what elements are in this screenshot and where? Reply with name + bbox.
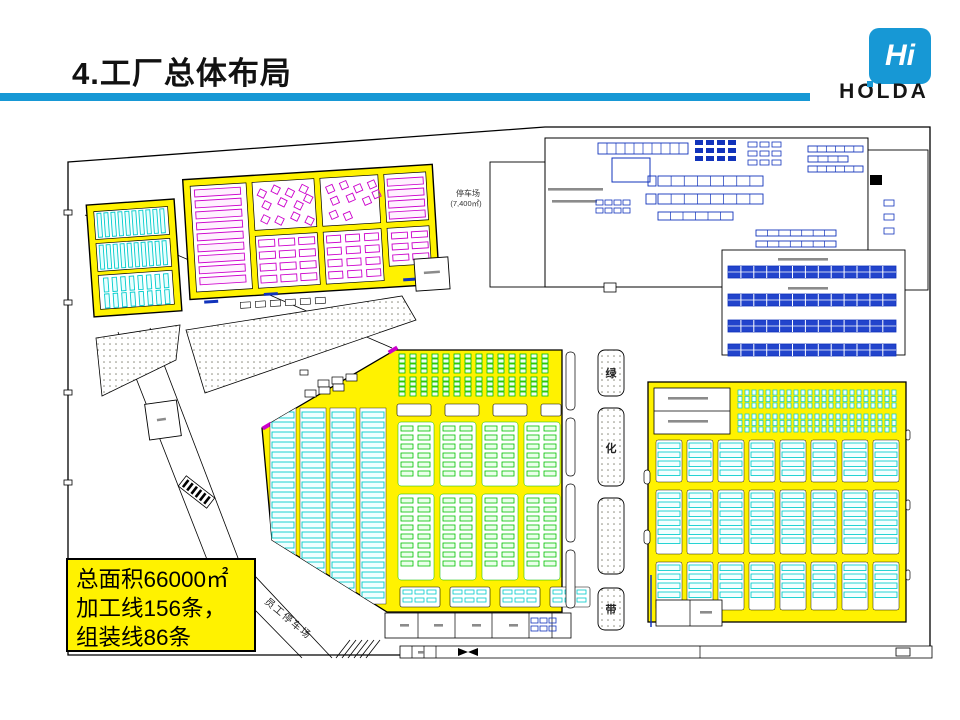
visitor-parking-label: 停车场 [456, 188, 480, 198]
green-belt-label-3: 带 [606, 602, 617, 616]
callout-line-processing-lines: 加工线156条， [76, 595, 252, 624]
south-wall-strip [400, 646, 932, 658]
callout-line-total-area: 总面积66000㎡ [76, 566, 252, 595]
green-belt-label-2: 化 [606, 441, 617, 455]
hall-annex-row [385, 613, 571, 638]
green-belt-label-1: 绿 [606, 366, 618, 380]
east-factory-hall [644, 382, 910, 627]
callout-line-assembly-lines: 组装线86条 [76, 624, 252, 653]
visitor-parking-area-label: (7,400㎡) [450, 199, 482, 208]
rack-storage-area [722, 250, 905, 356]
block-nw-cyan-workshop [86, 199, 182, 317]
area-stats-callout: 总面积66000㎡ 加工线156条， 组装线86条 [66, 558, 256, 652]
